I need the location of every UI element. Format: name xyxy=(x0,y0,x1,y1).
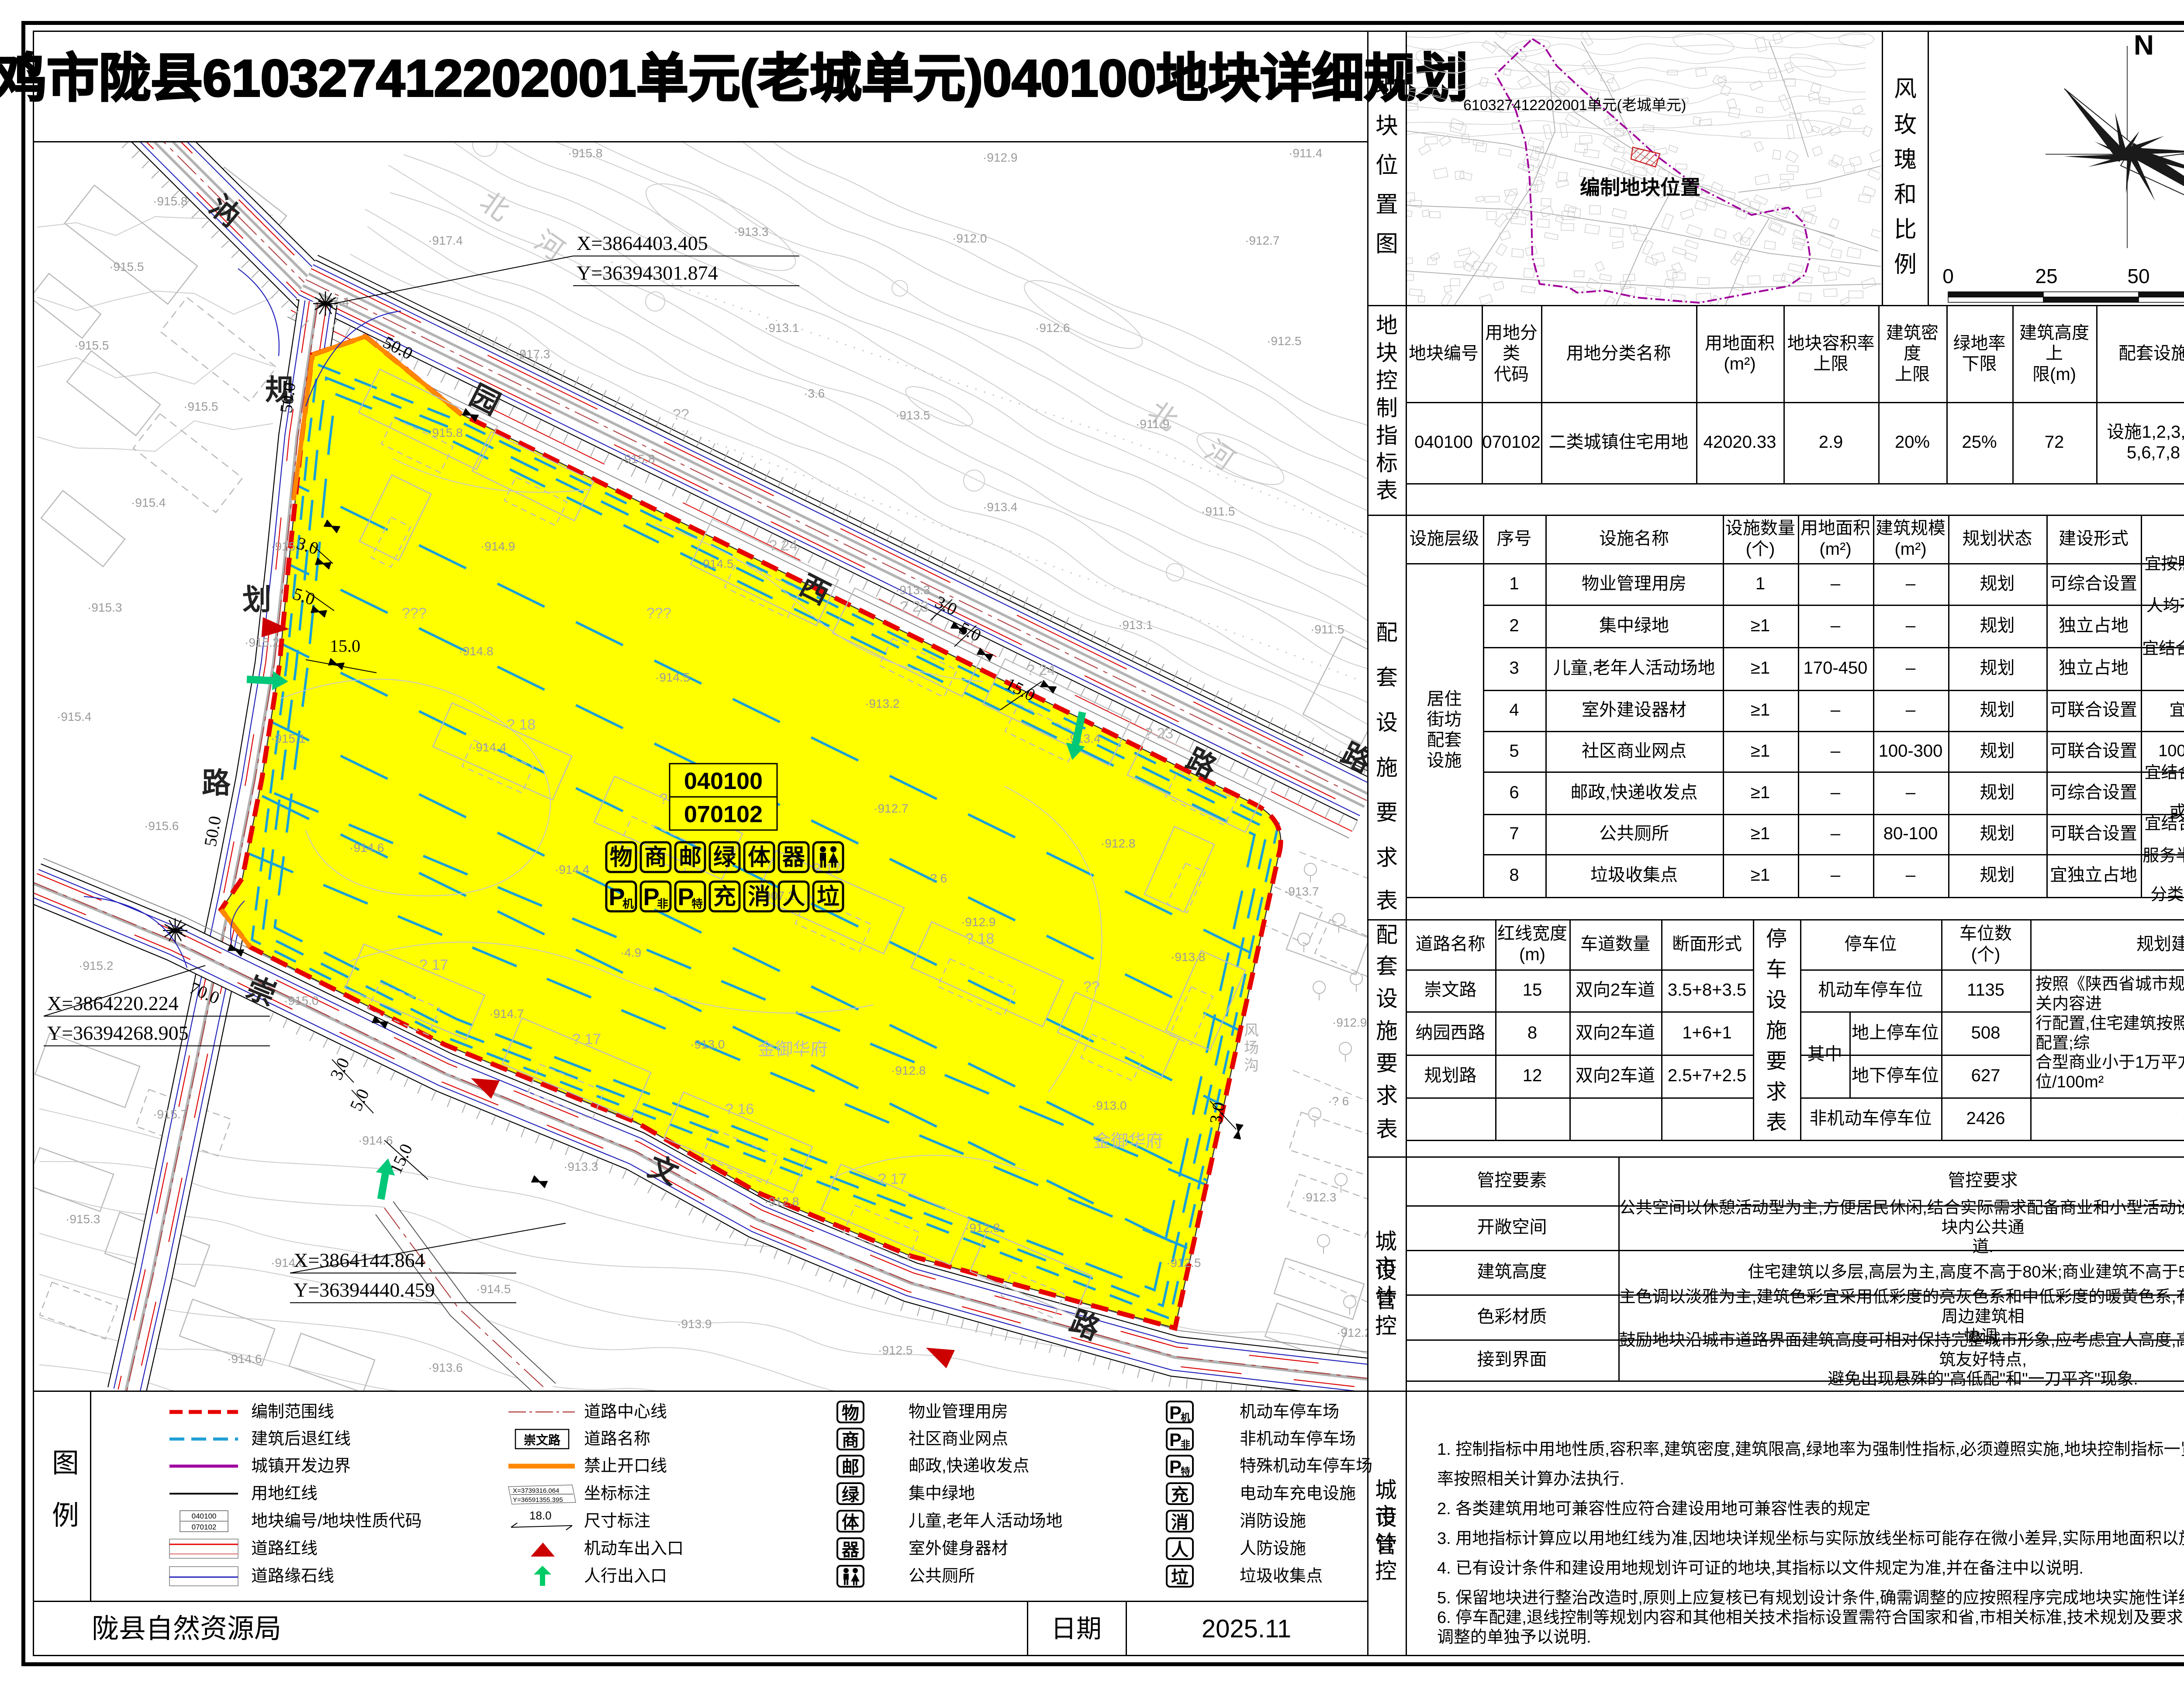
svg-text:·912.9: ·912.9 xyxy=(961,915,995,929)
svg-text:·915.7: ·915.7 xyxy=(153,1107,187,1121)
svg-text:·915.2: ·915.2 xyxy=(79,959,113,972)
svg-text:25: 25 xyxy=(2035,265,2057,287)
svg-text:人: 人 xyxy=(782,884,805,910)
svg-text:? 17: ? 17 xyxy=(812,861,841,877)
svg-text:???: ??? xyxy=(402,605,427,622)
svg-text:3.0: 3.0 xyxy=(326,1055,353,1083)
svg-text:040100: 040100 xyxy=(684,768,763,794)
svg-text:Y=36394301.874: Y=36394301.874 xyxy=(577,262,718,284)
svg-text:·914.6: ·914.6 xyxy=(358,1134,393,1147)
svg-text:特: 特 xyxy=(691,897,703,910)
svg-text:·914.5: ·914.5 xyxy=(699,557,733,571)
svg-text:消: 消 xyxy=(748,884,771,910)
svg-text:·913.7: ·913.7 xyxy=(1284,885,1319,898)
svg-text:·915.3: ·915.3 xyxy=(87,601,122,614)
svg-text:器: 器 xyxy=(782,845,805,870)
svg-text:·914.5: ·914.5 xyxy=(655,671,690,684)
svg-text:·915.8: ·915.8 xyxy=(620,452,655,466)
svg-text:商: 商 xyxy=(842,1431,859,1450)
svg-text:·912.9: ·912.9 xyxy=(1332,1016,1367,1029)
svg-text:·915.4: ·915.4 xyxy=(131,496,166,509)
svg-text:·912.5: ·912.5 xyxy=(1166,1256,1201,1270)
svg-text:充: 充 xyxy=(713,884,736,910)
svg-text:5.0: 5.0 xyxy=(346,1086,373,1114)
svg-text:垃: 垃 xyxy=(817,884,840,910)
svg-text:划: 划 xyxy=(242,583,271,616)
svg-text:·913.1: ·913.1 xyxy=(1118,618,1153,632)
svg-text:15.0: 15.0 xyxy=(330,636,360,656)
svg-text:·914.6: ·914.6 xyxy=(227,1352,262,1366)
svg-text:·913.3: ·913.3 xyxy=(895,583,930,597)
svg-text:场: 场 xyxy=(1244,1040,1259,1056)
svg-text:·913.6: ·913.6 xyxy=(428,1361,463,1374)
svg-text:物: 物 xyxy=(842,1404,859,1423)
svg-text:·911.5: ·911.5 xyxy=(1310,623,1344,636)
svg-text:·912.5: ·912.5 xyxy=(1267,334,1301,348)
svg-text:???: ??? xyxy=(646,605,671,622)
svg-text:? 17: ? 17 xyxy=(572,1031,601,1048)
svg-text:·914.5: ·914.5 xyxy=(476,1282,511,1296)
svg-text:河: 河 xyxy=(1199,434,1241,476)
svg-text:? 18: ? 18 xyxy=(965,931,994,947)
svg-text:·913.6: ·913.6 xyxy=(642,76,677,90)
svg-text:·913.3: ·913.3 xyxy=(734,225,768,239)
svg-text:·914.4: ·914.4 xyxy=(472,740,506,754)
svg-text:体: 体 xyxy=(842,1513,859,1532)
svg-text:崇文路: 崇文路 xyxy=(524,1433,561,1447)
svg-text:邮: 邮 xyxy=(679,845,702,870)
svg-text:金御华府: 金御华府 xyxy=(1093,1131,1163,1151)
svg-text:体: 体 xyxy=(748,845,771,870)
svg-text:·913.9: ·913.9 xyxy=(677,1317,712,1331)
svg-text:·4.9: ·4.9 xyxy=(620,946,641,959)
svg-text:特: 特 xyxy=(1181,1466,1190,1477)
svg-text:·917.4: ·917.4 xyxy=(428,234,463,247)
svg-text:绿: 绿 xyxy=(842,1485,860,1505)
svg-text:0: 0 xyxy=(1942,265,1954,287)
svg-text:·914.7: ·914.7 xyxy=(489,1007,524,1021)
svg-text:·915.8: ·915.8 xyxy=(568,146,602,160)
svg-text:·913.5: ·913.5 xyxy=(895,408,930,422)
svg-text:·915.4: ·915.4 xyxy=(57,710,91,723)
svg-text:·915.5: ·915.5 xyxy=(183,400,218,413)
svg-text:·911.9: ·911.9 xyxy=(1332,74,1366,88)
svg-text:·915.2: ·915.2 xyxy=(245,636,279,649)
svg-text:·? 6: ·? 6 xyxy=(1328,1094,1349,1108)
svg-text:N: N xyxy=(2134,29,2154,61)
svg-text:金御华府: 金御华府 xyxy=(758,1040,828,1059)
svg-text:沟: 沟 xyxy=(1244,1057,1259,1074)
svg-text:·913.0: ·913.0 xyxy=(1092,1099,1127,1112)
svg-text:18.0: 18.0 xyxy=(529,1510,552,1522)
svg-text:机: 机 xyxy=(1181,1412,1190,1423)
svg-text:? 18: ? 18 xyxy=(507,716,536,733)
svg-text:·915.8: ·915.8 xyxy=(428,426,463,439)
svg-text:50.0: 50.0 xyxy=(200,814,225,848)
svg-text:河: 河 xyxy=(529,225,570,266)
svg-text:? 24: ? 24 xyxy=(769,537,798,554)
svg-text:人: 人 xyxy=(1171,1540,1189,1560)
svg-text:3.0: 3.0 xyxy=(1206,1100,1229,1125)
svg-text:·913.0: ·913.0 xyxy=(690,1038,725,1051)
svg-text:·915.1: ·915.1 xyxy=(271,732,305,745)
svg-text:X=3864403.405: X=3864403.405 xyxy=(577,232,708,254)
svg-text:040100: 040100 xyxy=(192,1512,217,1520)
svg-text:·912.8: ·912.8 xyxy=(764,1195,799,1208)
svg-text:非: 非 xyxy=(657,897,668,910)
svg-text:·917.3: ·917.3 xyxy=(515,347,550,361)
svg-text:·915.8: ·915.8 xyxy=(153,194,187,208)
svg-text:? 17: ? 17 xyxy=(878,1171,907,1187)
svg-text:·? 6: ·? 6 xyxy=(926,872,947,885)
svg-text:·913.1: ·913.1 xyxy=(764,321,799,335)
svg-text:·914.4: ·914.4 xyxy=(555,863,589,876)
svg-text:·914.6: ·914.6 xyxy=(349,841,384,855)
svg-text:X=3864220.224: X=3864220.224 xyxy=(47,992,179,1014)
svg-text:·912.0: ·912.0 xyxy=(952,232,987,245)
svg-text:? 23: ? 23 xyxy=(1144,725,1173,742)
svg-text:??: ?? xyxy=(1083,979,1100,995)
svg-text:·911.4: ·911.4 xyxy=(1289,146,1322,160)
svg-text:·914.9: ·914.9 xyxy=(480,540,515,553)
svg-text:Y=36591355.395: Y=36591355.395 xyxy=(513,1496,563,1504)
svg-text:P: P xyxy=(1169,1457,1182,1477)
svg-text:·912.8: ·912.8 xyxy=(891,1064,926,1077)
svg-text:·912.3: ·912.3 xyxy=(1048,72,1083,86)
svg-text:·912.3: ·912.3 xyxy=(1302,1190,1336,1204)
svg-text:非: 非 xyxy=(1181,1439,1190,1450)
svg-text:充: 充 xyxy=(1171,1485,1189,1505)
svg-text:消: 消 xyxy=(1171,1513,1189,1532)
svg-text:商: 商 xyxy=(644,845,667,870)
svg-text:·912.7: ·912.7 xyxy=(874,802,908,815)
svg-text:·912.5: ·912.5 xyxy=(878,1343,912,1357)
svg-text:070102: 070102 xyxy=(192,1523,217,1531)
svg-text:编制地块位置: 编制地块位置 xyxy=(1580,176,1700,199)
svg-text:P: P xyxy=(1169,1402,1182,1423)
svg-text:·3.6: ·3.6 xyxy=(804,387,825,400)
svg-text:Y=36394440.459: Y=36394440.459 xyxy=(294,1279,435,1301)
svg-text:绿: 绿 xyxy=(713,845,736,870)
svg-text:·911.9: ·911.9 xyxy=(1136,417,1169,431)
svg-text:·911.5: ·911.5 xyxy=(1201,505,1235,518)
svg-text:·912.9: ·912.9 xyxy=(983,151,1017,164)
svg-text:Y=36394268.905: Y=36394268.905 xyxy=(47,1022,189,1044)
svg-text:机: 机 xyxy=(622,897,634,910)
svg-text:·913.4: ·913.4 xyxy=(1066,732,1100,745)
svg-text:? 17: ? 17 xyxy=(419,957,448,973)
svg-text:风: 风 xyxy=(1244,1022,1259,1039)
svg-text:P: P xyxy=(1169,1429,1182,1450)
svg-text:070102: 070102 xyxy=(684,801,763,827)
svg-text:·915.0: ·915.0 xyxy=(284,994,318,1007)
svg-text:·912.7: ·912.7 xyxy=(1245,234,1279,247)
svg-text:610327412202001单元(老城单元): 610327412202001单元(老城单元) xyxy=(1463,97,1686,114)
svg-text:物: 物 xyxy=(610,845,632,870)
svg-text:·915.3: ·915.3 xyxy=(66,1212,100,1226)
svg-text:垃: 垃 xyxy=(1171,1568,1189,1587)
svg-text:??: ?? xyxy=(673,406,689,423)
svg-text:·914.1: ·914.1 xyxy=(393,50,428,64)
svg-text:·912.8: ·912.8 xyxy=(965,1221,1000,1235)
svg-text:邮: 邮 xyxy=(842,1458,859,1477)
svg-text:器: 器 xyxy=(842,1540,860,1560)
svg-text:·915.5: ·915.5 xyxy=(109,260,144,273)
svg-text:·915.6: ·915.6 xyxy=(144,819,179,833)
svg-text:? 16: ? 16 xyxy=(725,1101,754,1118)
svg-text:·915.5: ·915.5 xyxy=(74,339,109,352)
svg-text:·917.7: ·917.7 xyxy=(227,120,262,134)
svg-text:·913.3: ·913.3 xyxy=(563,1160,598,1173)
svg-text:·914.8: ·914.8 xyxy=(459,644,493,658)
svg-text:50: 50 xyxy=(2127,265,2149,287)
svg-text:·913.4: ·913.4 xyxy=(983,500,1017,514)
svg-text:? 23: ? 23 xyxy=(900,599,929,615)
svg-text:·913.8: ·913.8 xyxy=(1171,950,1205,964)
svg-text:? 24: ? 24 xyxy=(1026,662,1055,678)
svg-text:50.0: 50.0 xyxy=(276,381,299,414)
svg-text:X=3739316.064: X=3739316.064 xyxy=(513,1487,559,1495)
svg-text:·913.2: ·913.2 xyxy=(865,697,899,710)
svg-text:·912.8: ·912.8 xyxy=(1101,837,1135,850)
svg-text:·912.6: ·912.6 xyxy=(1035,321,1070,335)
svg-text:路: 路 xyxy=(202,767,231,799)
